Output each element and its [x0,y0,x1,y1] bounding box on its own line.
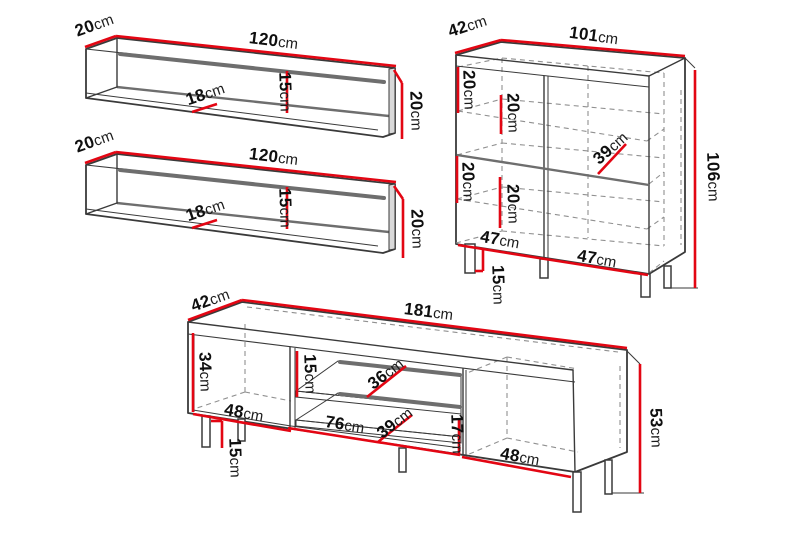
dim-cabinet-gap-top-inner: 20cm [503,93,523,133]
dim-cabinet-height: 106cm [703,152,724,202]
dim-shelf2-back-height: 15cm [275,188,295,228]
dim-tv-leg-height: 15cm [225,438,245,478]
dim-cabinet-gap-bottom-left: 20cm [458,162,478,202]
furniture-dimension-diagram: 20cm 120cm 18cm 15cm 20cm 20cm 120cm 18c… [0,0,800,533]
dim-tv-left-height: 34cm [195,352,215,392]
dim-tv-top-gap: 15cm [300,354,320,394]
dim-shelf1-back-height: 15cm [275,72,295,112]
diagram-canvas: 20cm 120cm 18cm 15cm 20cm 20cm 120cm 18c… [0,0,800,533]
dim-shelf1-end-height: 20cm [406,91,426,131]
dim-shelf2-end-height: 20cm [407,209,427,249]
dim-cabinet-gap-top-left: 20cm [459,70,479,110]
dim-cabinet-leg-height: 15cm [488,265,508,305]
dim-cabinet-gap-bottom-inner: 20cm [503,184,523,224]
dim-tv-bottom-gap: 17cm [447,414,467,454]
dim-tv-height: 53cm [646,408,666,448]
